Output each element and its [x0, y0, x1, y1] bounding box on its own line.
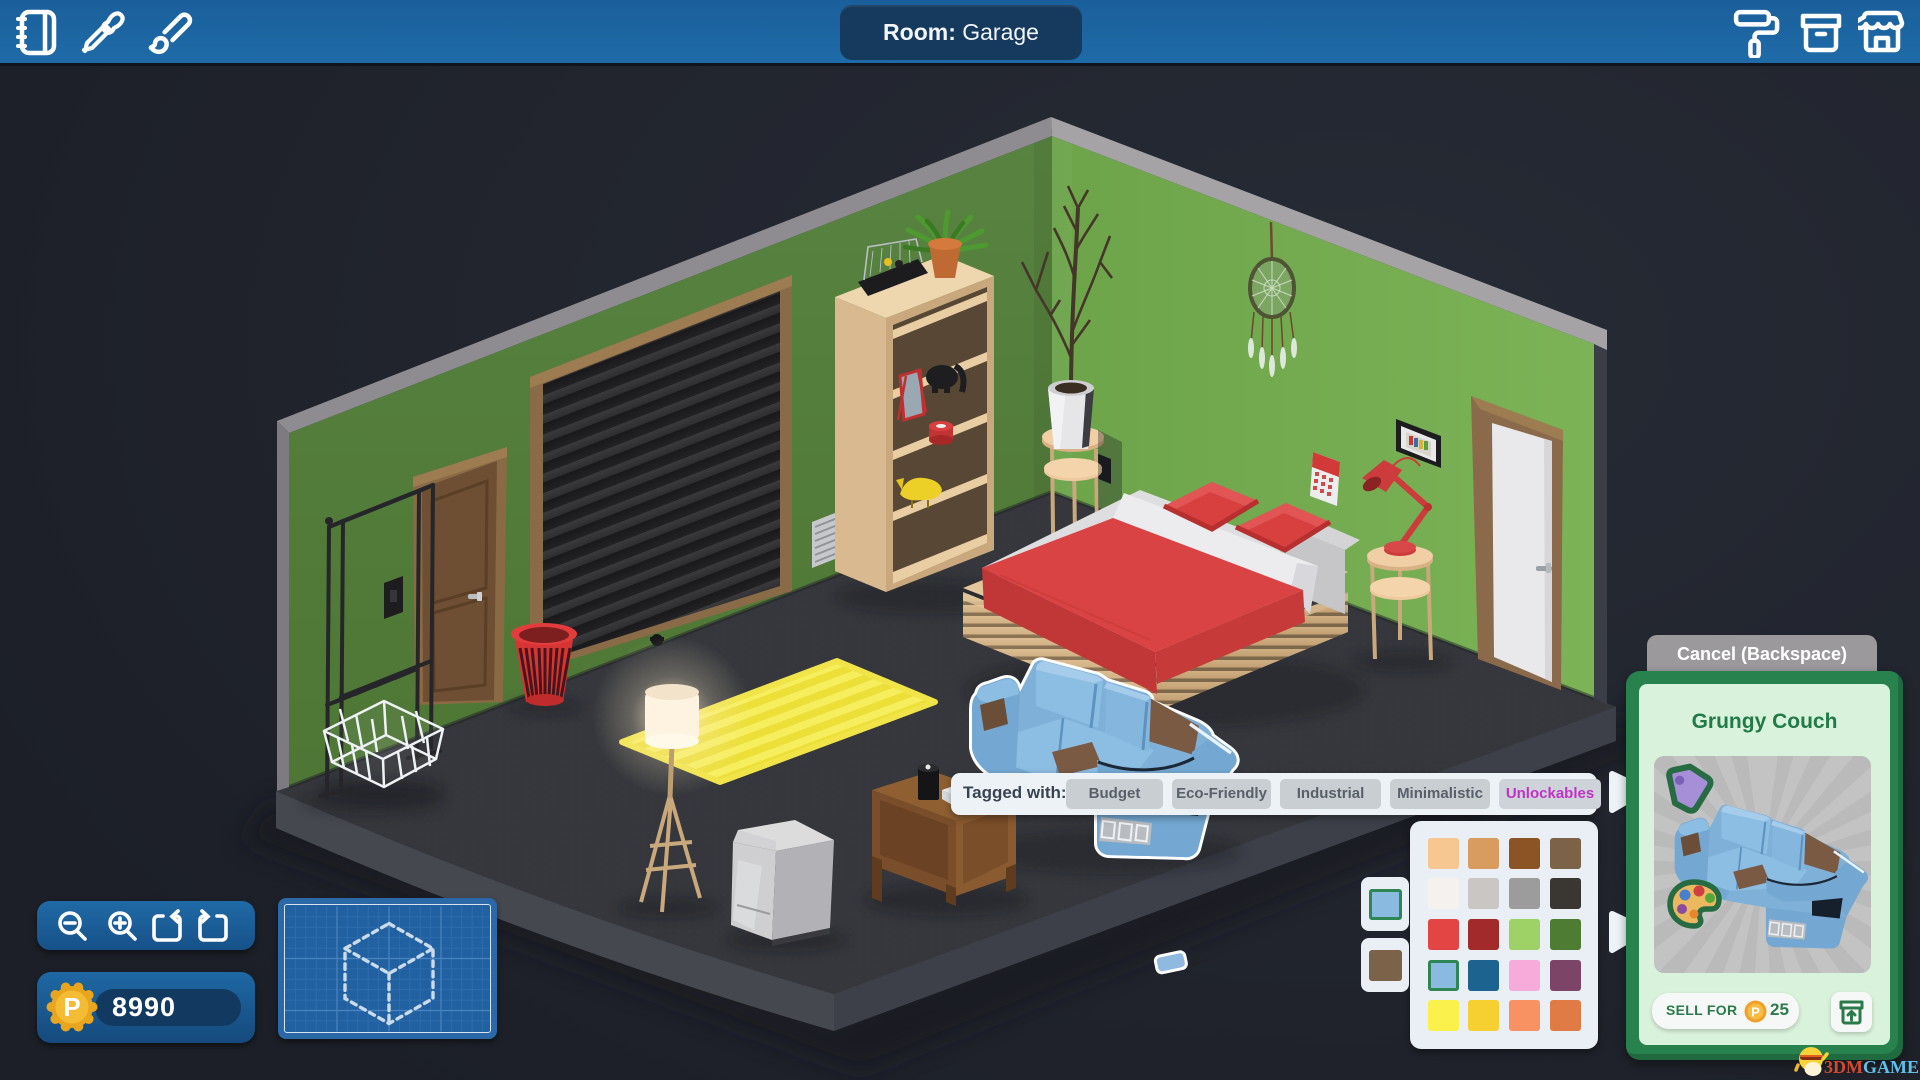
svg-text:P: P — [1751, 1005, 1760, 1020]
svg-text:P: P — [63, 992, 80, 1022]
